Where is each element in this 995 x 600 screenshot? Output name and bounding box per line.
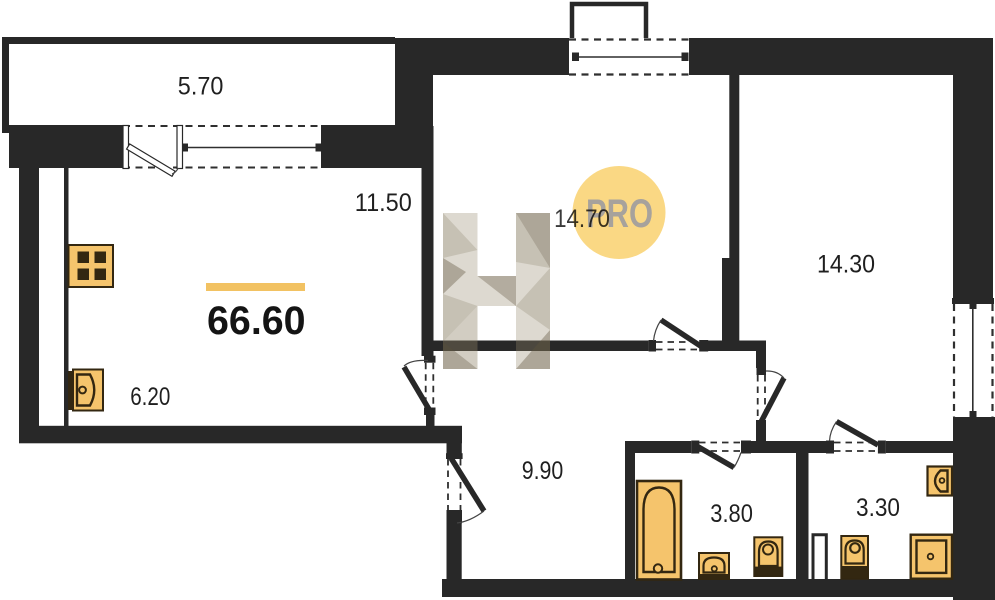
svg-text:5.70: 5.70 xyxy=(178,73,224,101)
svg-text:3.30: 3.30 xyxy=(856,494,900,522)
svg-text:3.80: 3.80 xyxy=(710,500,753,528)
svg-text:66.60: 66.60 xyxy=(207,299,306,343)
svg-text:14.70: 14.70 xyxy=(554,205,610,233)
svg-text:14.30: 14.30 xyxy=(817,251,875,279)
svg-text:11.50: 11.50 xyxy=(355,189,412,217)
svg-text:9.90: 9.90 xyxy=(522,457,564,485)
svg-text:6.20: 6.20 xyxy=(130,383,170,411)
